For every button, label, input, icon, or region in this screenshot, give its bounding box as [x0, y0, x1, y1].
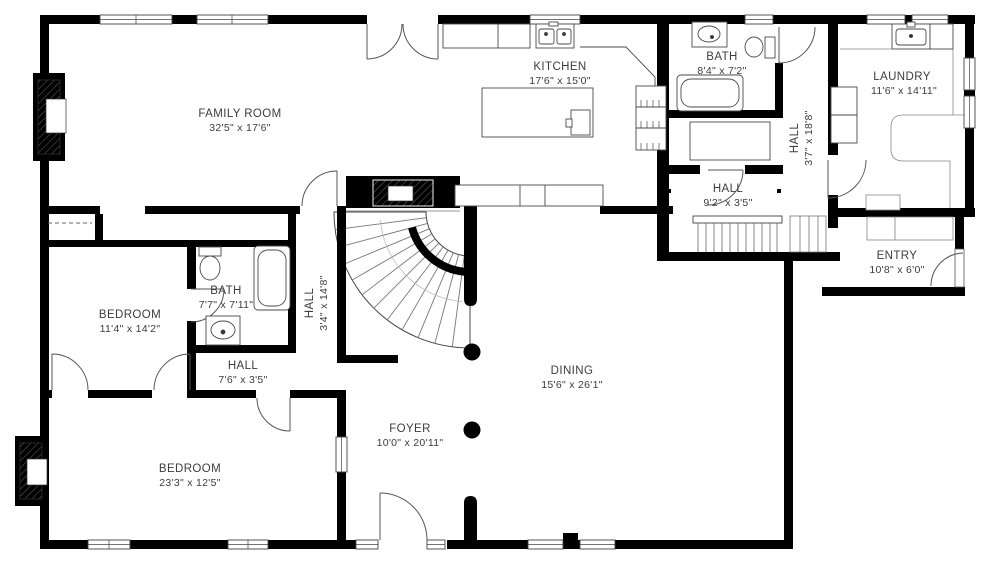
room-label-hall-bed: HALL — [228, 360, 259, 372]
laundry-sink — [892, 22, 930, 49]
room-dims-dining: 15'6" x 26'1" — [541, 379, 603, 391]
room-dims-bath-lower: 7'7" x 7'11" — [199, 299, 254, 311]
room-label-bath-lower: BATH — [210, 285, 241, 297]
room-dims-entry: 10'8" x 6'0" — [869, 264, 924, 276]
room-label-hall-right: HALL — [789, 123, 801, 154]
room-dims-bath-upper: 8'4" x 7'2" — [697, 65, 746, 77]
room-dims-hall-stairs: 3'4" x 14'8" — [318, 275, 330, 330]
room-label-foyer: FOYER — [389, 423, 431, 435]
room-dims-laundry: 11'6" x 14'11" — [871, 85, 937, 97]
room-dims-foyer: 10'0" x 20'11" — [377, 437, 444, 449]
room-label-kitchen: KITCHEN — [533, 61, 586, 73]
dining-counter — [455, 185, 603, 206]
laundry-cabinet — [831, 87, 857, 143]
column — [464, 422, 481, 439]
room-label-hall-stairs: HALL — [304, 288, 316, 319]
entry-closet — [895, 217, 953, 240]
fireplace-family-room — [33, 73, 66, 161]
room-dims-family-room: 32'5" x 17'6" — [209, 122, 271, 134]
toilet — [745, 37, 775, 58]
room-label-family-room: FAMILY ROOM — [198, 108, 281, 120]
oven-stack — [636, 86, 666, 150]
room-label-hall-mid: HALL — [713, 183, 744, 195]
entry-fixtures — [867, 217, 953, 240]
entry-closet — [867, 217, 895, 240]
kitchen-sink — [536, 22, 574, 48]
kitchen-island — [482, 88, 593, 137]
sink — [206, 316, 240, 345]
bathtub — [254, 246, 290, 310]
floor-plan: FAMILY ROOM 32'5" x 17'6" KITCHEN 17'6" … — [0, 0, 1000, 566]
hall-closet-dresser — [690, 122, 770, 160]
room-dims-bedroom-2: 23'3" x 12'5" — [159, 477, 221, 489]
room-dims-bedroom-1: 11'4" x 14'2" — [100, 323, 161, 335]
sink — [692, 22, 727, 47]
toilet — [199, 247, 221, 280]
fireplace-bedroom — [15, 436, 48, 506]
room-label-entry: ENTRY — [877, 250, 918, 262]
room-dims-hall-bed: 7'6" x 3'5" — [218, 374, 267, 386]
room-label-bedroom-2: BEDROOM — [159, 463, 221, 475]
hall-steps — [790, 216, 826, 252]
room-label-bath-upper: BATH — [706, 51, 737, 63]
plan-background — [0, 0, 1000, 566]
room-label-bedroom-1: BEDROOM — [99, 309, 161, 321]
bathtub — [677, 75, 743, 111]
room-dims-hall-mid: 9'2" x 3'5" — [703, 197, 752, 209]
room-dims-kitchen: 17'6" x 15'0" — [529, 75, 591, 87]
room-dims-hall-right: 3'7" x 18'8" — [803, 110, 815, 165]
laundry-closet — [866, 195, 900, 210]
laundry-counter — [930, 24, 953, 49]
column — [464, 344, 481, 361]
room-label-laundry: LAUNDRY — [873, 71, 931, 83]
kitchen-counter — [443, 24, 530, 48]
floor-plan-svg: FAMILY ROOM 32'5" x 17'6" KITCHEN 17'6" … — [0, 0, 1000, 566]
room-label-dining: DINING — [551, 365, 594, 377]
